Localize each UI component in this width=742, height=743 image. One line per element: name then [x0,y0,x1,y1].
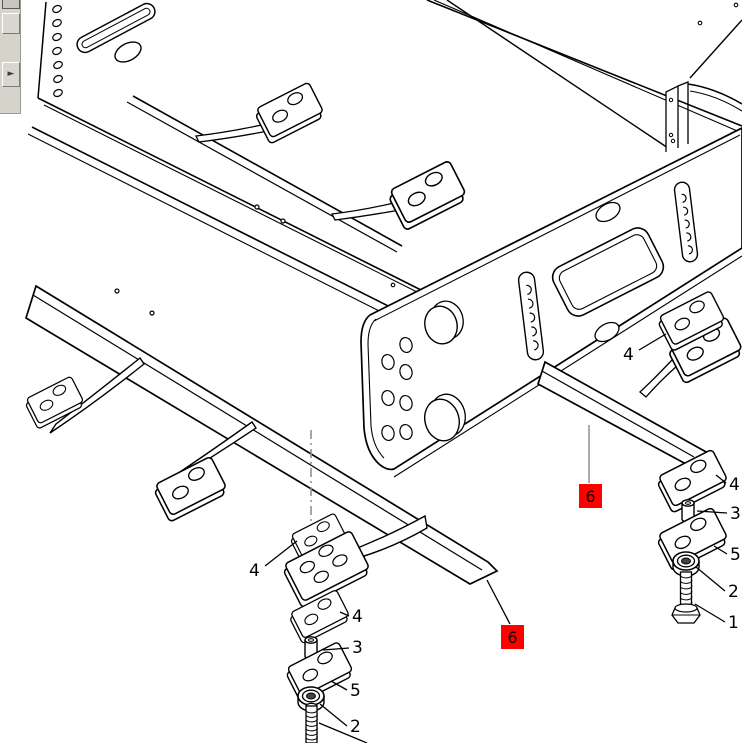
parts-catalog-window: { "window": { "width": 742, "height": 74… [0,0,742,743]
callout-4[interactable]: 4 [249,561,260,581]
callout-1[interactable]: 1 [728,613,739,633]
callout-4[interactable]: 4 [623,345,634,365]
body-left-wall [28,1,429,327]
highlight-marker-label[interactable]: 6 [507,628,517,647]
callout-2[interactable]: 2 [728,582,739,602]
right-hardware-stack [655,449,730,623]
callout-3[interactable]: 3 [730,504,741,524]
bolt [306,703,317,743]
floor-edges [427,0,742,148]
callout-5[interactable]: 5 [730,545,741,565]
callout-3[interactable]: 3 [352,638,363,658]
callout-2[interactable]: 2 [350,717,361,737]
callout-4[interactable]: 4 [352,607,363,627]
markers-layer: 66 [501,484,602,649]
wall-slot [74,1,157,56]
bolt [672,572,700,623]
highlight-marker-label[interactable]: 6 [585,487,595,506]
upper-cross-rail [127,82,468,252]
callout-5[interactable]: 5 [350,681,361,701]
parts-diagram: 44352443521 66 [0,0,742,743]
callout-4[interactable]: 4 [729,475,740,495]
